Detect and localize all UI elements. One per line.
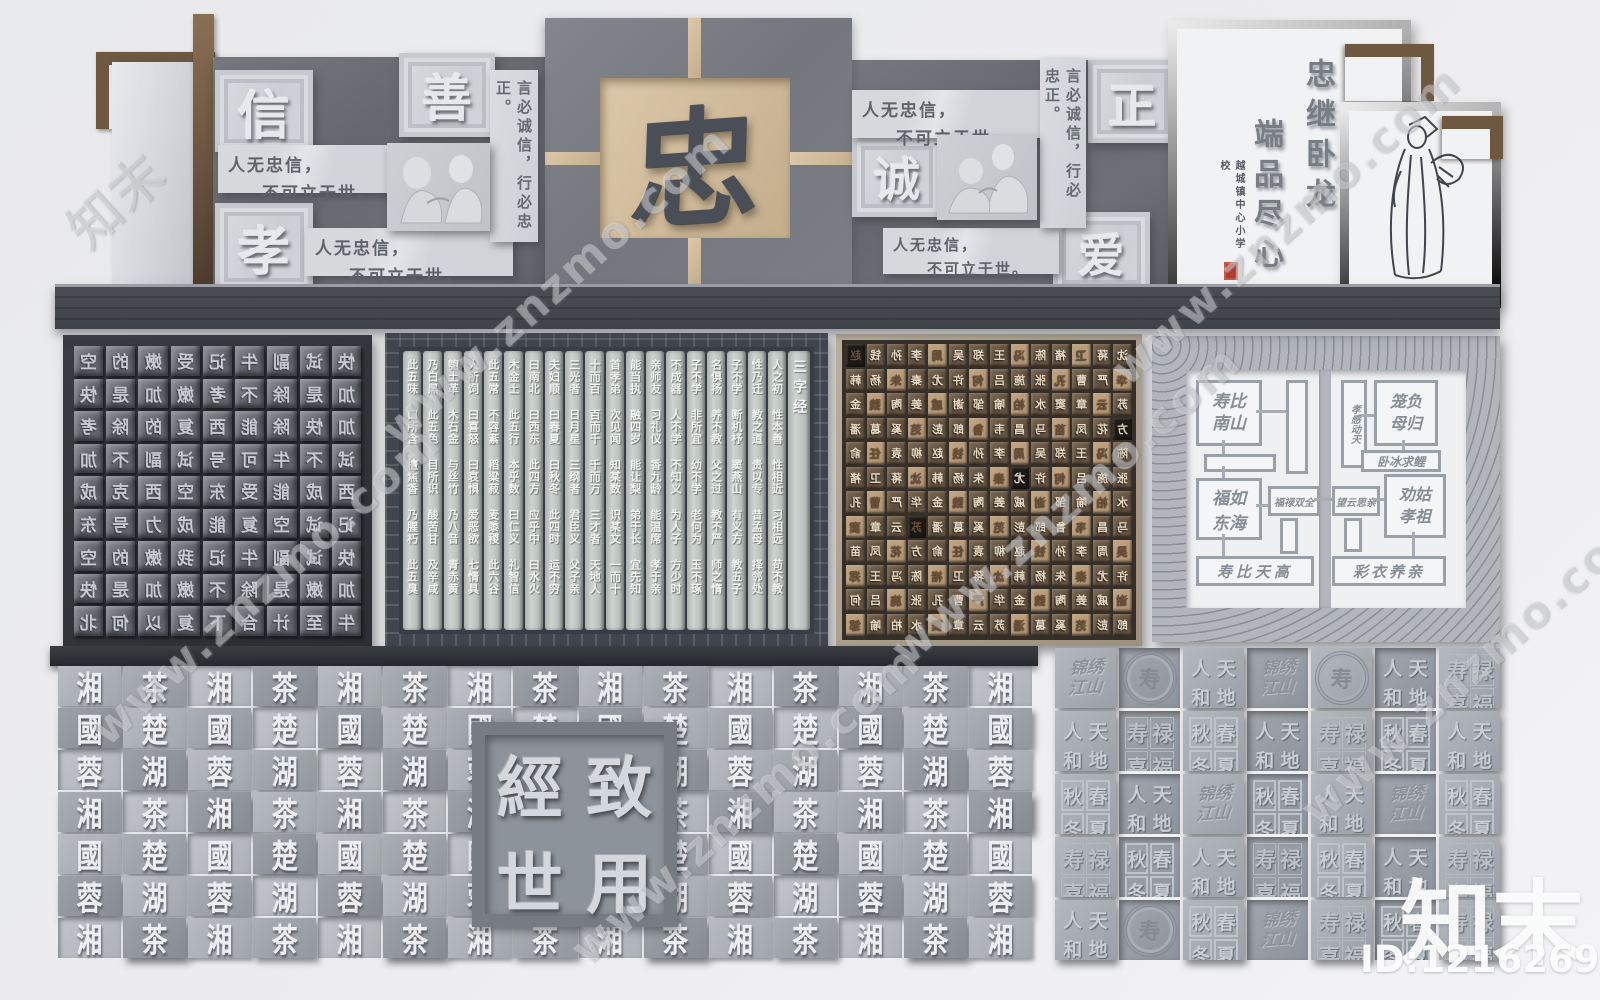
type-char-mirrored: 加	[338, 413, 355, 438]
type-char-mirrored: 空	[80, 544, 97, 569]
seal-block: 湘	[839, 666, 902, 706]
type-block: 能	[267, 476, 296, 506]
surname-block: 何	[969, 369, 988, 392]
surname-char-mirrored: 曹	[953, 592, 964, 608]
surname-char-mirrored: 孙	[973, 445, 984, 461]
surname-char-mirrored: 邹	[1055, 494, 1066, 510]
surname-char-mirrored: 潘	[932, 519, 943, 535]
type-char-mirrored: 考	[209, 381, 226, 406]
type-block: 空	[267, 509, 296, 539]
seal-char: 國	[207, 831, 233, 877]
surname-char-mirrored: 苗	[850, 543, 861, 559]
surname-block: 姜	[990, 491, 1009, 514]
surname-char-mirrored: 秦	[911, 372, 922, 388]
diagram-line	[1222, 534, 1225, 556]
surname-block: 苗	[1052, 418, 1071, 441]
blessing-box-wangyunsiqin: 望云思亲	[1332, 486, 1380, 516]
tile-tiandi: 人天和地	[1247, 711, 1308, 771]
surname-char-mirrored: 秦	[1076, 568, 1087, 584]
type-char-mirrored: 牛	[241, 544, 258, 569]
春夏秋冬-grid: 秋春冬夏	[1061, 780, 1110, 828]
blessing-box-shoubitiangao: 寿比天高	[1196, 556, 1314, 586]
type-block: 可	[235, 444, 264, 474]
tile-char: 天	[1086, 906, 1109, 933]
type-block: 嫩	[171, 379, 200, 409]
type-char-mirrored: 加	[145, 381, 162, 406]
surname-block: 韩	[1011, 565, 1030, 588]
surname-block: 马	[1113, 516, 1132, 539]
surname-block: 金	[1011, 589, 1030, 612]
sanzijing-slat: 子不学 非所宜 幼不学 老何为 玉不琢	[687, 351, 705, 630]
surname-block: 邹	[1052, 491, 1071, 514]
seal-char: 國	[987, 831, 1013, 877]
diagram-connector-box	[1344, 518, 1362, 552]
type-block: 克	[106, 476, 135, 506]
seal-char: 蓉	[337, 747, 363, 793]
quote-line2: 不可立于世。	[228, 179, 396, 204]
tile-char: 地	[1214, 683, 1237, 708]
seal-char: 茶	[272, 789, 298, 835]
type-block: 加	[332, 411, 361, 441]
春夏秋冬-grid: 秋春冬夏	[1445, 780, 1494, 828]
seal-block: 國	[709, 708, 772, 748]
type-char-mirrored: 记	[338, 511, 355, 536]
surname-char-mirrored: 郑	[973, 347, 984, 363]
seal-block: 湘	[969, 792, 1032, 832]
surname-block: 吕	[990, 369, 1009, 392]
surname-block: 朱	[887, 369, 906, 392]
surname-block: 水	[1031, 393, 1050, 416]
type-char-mirrored: 东	[80, 511, 97, 536]
surname-block: 尤	[1093, 565, 1112, 588]
surname-block: 彭	[928, 418, 947, 441]
type-char-mirrored: 除	[273, 413, 290, 438]
tile-char: 天	[1406, 654, 1429, 681]
type-block: 嫩	[138, 346, 167, 376]
sanzijing-title-slat: 三字经	[788, 351, 810, 630]
tile-char: 和	[1445, 746, 1468, 771]
seal-char: 茶	[272, 915, 298, 961]
sanzijing-slat: 能当执 融四岁 能让梨 弟于长 宜先知	[626, 351, 644, 630]
surname-char-mirrored: 任	[870, 445, 881, 461]
surname-block: 秦	[908, 369, 927, 392]
seal-char: 湘	[987, 663, 1013, 709]
surname-block: 云	[887, 516, 906, 539]
surname-char-mirrored: 赵	[932, 445, 943, 461]
school-name: 越城镇中心小学校	[1216, 160, 1246, 258]
jinxiu-line: 江山	[1259, 677, 1295, 700]
type-block: 以	[138, 606, 167, 636]
surname-block: 赵	[846, 344, 865, 367]
surname-char-mirrored: 潘	[850, 421, 861, 437]
type-block: 复	[171, 411, 200, 441]
type-char-mirrored: 的	[112, 348, 129, 373]
surname-char-mirrored: 曹	[870, 494, 881, 510]
stone-pillar	[112, 62, 196, 284]
tile-char: 寿	[1317, 717, 1340, 749]
jinxiu-line: 江山	[1387, 803, 1423, 826]
春夏秋冬-grid: 秋春冬夏	[1253, 780, 1302, 828]
surname-block: 苏	[1113, 393, 1132, 416]
seal-block: 湘	[969, 918, 1032, 958]
tile-fulu: 寿禄喜福	[1247, 837, 1308, 897]
blessing-box-quanguxiaozu: 劝姑孝祖	[1384, 474, 1446, 538]
seal-char: 湖	[272, 873, 298, 919]
surname-char-mirrored: 彭	[1014, 519, 1025, 535]
seal-char: 楚	[272, 705, 298, 751]
surname-block: 许	[1113, 565, 1132, 588]
tile-char: 禄	[1342, 717, 1365, 749]
天地人和-grid: 人天和地	[1061, 906, 1110, 954]
type-char-mirrored: 东	[209, 478, 226, 503]
blessing-diagram-panel: 寿比南山 福如东海 福禄双全 寿比天高 孝感动天 笼负母归 卧冰求鲤 望云思亲 …	[1152, 336, 1500, 642]
surname-char-mirrored: 葛	[1035, 617, 1046, 633]
seal-char: 茶	[402, 915, 428, 961]
type-char-mirrored: 嫩	[177, 381, 194, 406]
surname-block: 郎	[1113, 614, 1132, 637]
surname-block: 柏	[1011, 393, 1030, 416]
seal-char: 楚	[142, 705, 168, 751]
seal-char: 湘	[77, 663, 103, 709]
tile-char: 秋	[1061, 780, 1084, 811]
calligraphy-line-2: 端品尽心	[1243, 118, 1287, 288]
type-char-mirrored: 号	[209, 446, 226, 471]
sanzijing-slat: 曰南北 曰西东 此四方 应乎中 曰水火	[525, 351, 543, 630]
type-block: 不	[235, 379, 264, 409]
seal-block: 茶	[383, 666, 446, 706]
tile-tiandi: 人天和地	[1311, 774, 1372, 834]
tile-char: 寿	[1317, 906, 1340, 938]
surname-char-mirrored: 彭	[1097, 617, 1108, 633]
tile-medallion: 寿	[1119, 648, 1180, 708]
tile-jinxiu: 锦绣江山	[1055, 648, 1116, 708]
tile-fulu: 寿禄喜福	[1311, 711, 1372, 771]
surname-block: 钱	[949, 442, 968, 465]
surname-block: 范	[908, 418, 927, 441]
type-char-mirrored: 至	[306, 609, 323, 634]
type-char-mirrored: 的	[112, 544, 129, 569]
type-char-mirrored: 试	[306, 511, 323, 536]
tile-char: 地	[1150, 809, 1173, 834]
seal-block: 楚	[904, 708, 967, 748]
seal-char: 茶	[922, 789, 948, 835]
surname-char-mirrored: 魏	[870, 396, 881, 412]
tile-char: 春	[1150, 843, 1173, 874]
tile-char: 夏	[1278, 813, 1301, 834]
seal-block: 湘	[318, 792, 381, 832]
tile-char: 人	[1061, 717, 1084, 744]
tile-char: 秋	[1381, 717, 1404, 748]
longevity-medallion-icon: 寿	[1123, 903, 1177, 957]
diagram-line	[1314, 498, 1332, 501]
loyalty-char: 忠	[627, 61, 762, 254]
tile-char: 冬	[1381, 750, 1404, 771]
surname-block: 谢	[949, 393, 968, 416]
quote-plaque-1: 人无忠信， 不可立于世。	[218, 145, 406, 193]
type-block: 试	[171, 444, 200, 474]
slat-container: 三字经 人之初 性本善 性相近 习相远 苟不教性乃迁 教之道 贵以专 昔孟母 择…	[399, 347, 814, 634]
seal-char: 湘	[337, 789, 363, 835]
surname-char-mirrored: 马	[1117, 519, 1128, 535]
surname-block: 奚	[887, 418, 906, 441]
surname-block: 曹	[1072, 369, 1091, 392]
surname-char-mirrored: 方	[1117, 421, 1128, 437]
quote-line2: 不可立于世。	[893, 258, 1049, 279]
surname-block: 喻	[1072, 491, 1091, 514]
surname-block: 韦	[1072, 516, 1091, 539]
jinxiu-jiangshan-text: 锦绣江山	[1259, 656, 1296, 699]
jinxiu-line: 锦绣	[1068, 656, 1104, 679]
surname-block: 云	[1093, 393, 1112, 416]
tile-char: 福	[1278, 877, 1301, 897]
surname-char-mirrored: 施	[1097, 470, 1108, 486]
tile-char: 喜	[1317, 751, 1340, 771]
surname-block: 蒋	[1093, 344, 1112, 367]
surname-block: 孙	[1052, 540, 1071, 563]
surname-char-mirrored: 窦	[1055, 396, 1066, 412]
type-char-mirrored: 西	[338, 478, 355, 503]
diagram-line	[1402, 440, 1405, 450]
surname-char-mirrored: 云	[891, 519, 902, 535]
seal-block: 茶	[904, 666, 967, 706]
seal-char: 國	[207, 705, 233, 751]
virtue-char-shan: 善	[422, 59, 472, 131]
type-char-mirrored: 是	[273, 576, 290, 601]
surname-block: 马	[1031, 418, 1050, 441]
surname-block: 方	[1113, 418, 1132, 441]
seal-block: 湘	[188, 666, 251, 706]
surname-char-mirrored: 喻	[1076, 494, 1087, 510]
天地人和-grid: 人天和地	[1381, 654, 1430, 702]
tile-fulu: 寿禄喜福	[1119, 711, 1180, 771]
virtue-panel-cheng: 诚	[852, 137, 942, 217]
type-block: 考	[203, 379, 232, 409]
surname-char-mirrored: 戚	[932, 396, 943, 412]
type-char-mirrored: 受	[177, 348, 194, 373]
seal-char: 湖	[792, 873, 818, 919]
type-char-mirrored: 牛	[338, 609, 355, 634]
surname-char-mirrored: 曹	[1076, 372, 1087, 388]
tile-jinxiu: 锦绣江山	[1375, 774, 1436, 834]
tile-char: 夏	[1342, 876, 1365, 897]
surname-char-mirrored: 袁	[891, 445, 902, 461]
surname-block: 陶	[887, 393, 906, 416]
seal-block: 蓉	[969, 750, 1032, 790]
type-char-mirrored: 不	[209, 576, 226, 601]
surname-block: 戚	[928, 393, 947, 416]
jinxiu-line: 江山	[1067, 677, 1103, 700]
surname-char-mirrored: 王	[994, 347, 1005, 363]
tile-medallion: 寿	[1311, 648, 1372, 708]
surname-block: 钱	[1031, 540, 1050, 563]
type-block: 嫩	[171, 574, 200, 604]
surname-block: 张	[1113, 467, 1132, 490]
seal-block: 蓉	[188, 876, 251, 916]
surname-block: 尤	[1011, 467, 1030, 490]
seal-char: 國	[337, 705, 363, 751]
surname-char-mirrored: 韩	[1014, 568, 1025, 584]
tile-char: 福	[1470, 688, 1493, 708]
seal-block: 楚	[253, 834, 316, 874]
seal-block: 湖	[383, 876, 446, 916]
tile-char: 地	[1278, 746, 1301, 771]
jinxiu-line: 锦绣	[1260, 656, 1296, 679]
seal-block: 湖	[123, 750, 186, 790]
seal-block: 楚	[774, 834, 837, 874]
seal-block: 國	[58, 834, 121, 874]
surname-block: 周	[1011, 442, 1030, 465]
surname-char-mirrored: 谢	[1035, 494, 1046, 510]
type-char-mirrored: 西	[209, 413, 226, 438]
surname-char-mirrored: 云	[1097, 396, 1108, 412]
tile-chunxia: 秋春冬夏	[1183, 711, 1244, 771]
surname-char-mirrored: 沈	[1117, 347, 1128, 363]
tile-char: 和	[1061, 935, 1084, 960]
seal-block: 茶	[123, 918, 186, 958]
red-seal-stamp	[1224, 262, 1238, 280]
surname-char-mirrored: 冯	[1097, 445, 1108, 461]
seal-char: 蓉	[857, 873, 883, 919]
春夏秋冬-grid: 秋春冬夏	[1317, 843, 1366, 891]
seal-char: 蓉	[727, 873, 753, 919]
福禄寿喜-grid: 寿禄喜福	[1253, 843, 1302, 891]
tile-jinxiu: 锦绣江山	[1247, 648, 1308, 708]
surname-char-mirrored: 吕	[1076, 470, 1087, 486]
seal-block: 湖	[123, 876, 186, 916]
type-block: 计	[267, 606, 296, 636]
sanzijing-slat: 子不学 断机杼 窦燕山 有义方 教五子	[727, 351, 745, 630]
tile-char: 夏	[1214, 750, 1237, 771]
seal-char: 茶	[142, 915, 168, 961]
surname-char-mirrored: 李	[911, 347, 922, 363]
surname-block: 柳	[990, 540, 1009, 563]
type-char-mirrored: 空	[273, 511, 290, 536]
tile-char: 福	[1086, 877, 1109, 897]
diagram-line	[1222, 466, 1225, 478]
seal-char: 茶	[402, 663, 428, 709]
type-char-mirrored: 嫩	[145, 544, 162, 569]
type-block: 我	[171, 541, 200, 571]
surname-char-mirrored: 华	[994, 592, 1005, 608]
jingshizhiyong-panel: 經 致 世 用	[472, 722, 677, 927]
type-block: 副	[267, 346, 296, 376]
tile-char: 地	[1086, 746, 1109, 771]
type-block: 合	[235, 606, 264, 636]
surname-char-mirrored: 陈	[1035, 347, 1046, 363]
surname-char-mirrored: 谢	[953, 396, 964, 412]
surname-block: 鲁	[969, 418, 988, 441]
tile-chunxia: 秋春冬夏	[1375, 711, 1436, 771]
seal-char: 湘	[857, 789, 883, 835]
jinxiu-line: 锦绣	[1388, 782, 1424, 805]
tile-char: 喜	[1125, 751, 1148, 771]
wood-type-panel: 赵钱孙李周吴郑王冯陈褚卫蒋沈韩杨朱秦尤许何吕施张孔曹严华金魏陶姜戚谢邹喻柏水窦章…	[836, 334, 1142, 646]
sanzijing-slat: 不成器 人不学 不知义 为人子 方少时	[666, 351, 684, 630]
seal-block: 國	[188, 834, 251, 874]
surname-block: 秦	[990, 467, 1009, 490]
jinxiu-line: 江山	[1195, 803, 1231, 826]
sanzijing-slat: 三光者 日月星 三纲者 君臣义 父子亲	[565, 351, 583, 630]
type-block: 加	[332, 379, 361, 409]
type-char-mirrored: 快	[80, 576, 97, 601]
seal-block: 國	[969, 708, 1032, 748]
surname-block: 王	[990, 344, 1009, 367]
seal-char: 國	[337, 831, 363, 877]
surname-block: 曹	[949, 589, 968, 612]
tile-char: 寿	[1061, 843, 1084, 875]
sanzijing-slat: 乃白黑 此五色 目所识 酸苦甘 及辛咸	[423, 351, 441, 630]
tile-char: 福	[1150, 751, 1173, 771]
surname-block: 尤	[928, 369, 947, 392]
天地人和-grid: 人天和地	[1445, 717, 1494, 765]
tile-char: 秋	[1125, 843, 1148, 874]
type-block: 嫩	[138, 541, 167, 571]
surname-char-mirrored: 卫	[953, 568, 964, 584]
virtue-char-xin: 信	[238, 74, 290, 149]
surname-block: 金	[846, 393, 865, 416]
tile-char: 冬	[1189, 939, 1212, 960]
surname-char-mirrored: 杨	[953, 470, 964, 486]
school-signature-group: 越城镇中心小学校	[1216, 160, 1246, 280]
surname-block: 许	[1031, 467, 1050, 490]
type-block: 复	[235, 509, 264, 539]
surname-char-mirrored: 王	[1076, 445, 1087, 461]
tile-char: 春	[1086, 780, 1109, 811]
surname-char-mirrored: 苏	[994, 617, 1005, 633]
seal-char: 湘	[77, 915, 103, 961]
sanzijing-slat: 名俱扬 养不教 父之过 教不严 师之惰	[707, 351, 725, 630]
surname-char-mirrored: 柏	[1014, 396, 1025, 412]
blessing-box-shoubinanshan: 寿比南山	[1196, 380, 1262, 446]
tile-char: 春	[1406, 717, 1429, 748]
surname-block: 孙	[887, 344, 906, 367]
center-char-yong: 用	[575, 831, 665, 927]
tile-char: 禄	[1086, 843, 1109, 875]
tile-tiandi: 人天和地	[1119, 774, 1180, 834]
tile-char: 喜	[1061, 877, 1084, 897]
blessing-text: 笼负母归	[1387, 391, 1425, 434]
tile-char: 喜	[1253, 877, 1276, 897]
surname-block: 施	[1011, 369, 1030, 392]
tile-char: 冬	[1445, 813, 1468, 834]
surname-block: 彭	[1011, 516, 1030, 539]
surname-char-mirrored: 葛	[870, 421, 881, 437]
surname-char-mirrored: 俞	[850, 445, 861, 461]
surname-block: 陈	[908, 565, 927, 588]
tile-char: 和	[1381, 683, 1404, 708]
surname-char-mirrored: 褚	[850, 470, 861, 486]
tile-char: 禄	[1278, 843, 1301, 875]
surname-block: 华	[1113, 369, 1132, 392]
seal-char: 湘	[597, 663, 623, 709]
seal-block: 茶	[644, 666, 707, 706]
type-char-mirrored: 牛	[241, 348, 258, 373]
surname-char-mirrored: 朱	[1055, 568, 1066, 584]
tile-fulu: 寿禄喜福	[1439, 648, 1500, 708]
tile-char: 冬	[1189, 750, 1212, 771]
seal-char: 蓉	[77, 747, 103, 793]
seal-char: 湘	[337, 663, 363, 709]
tile-char: 福	[1342, 751, 1365, 771]
type-block: 除	[106, 411, 135, 441]
type-char-mirrored: 以	[145, 609, 162, 634]
surname-char-mirrored: 郎	[1035, 519, 1046, 535]
seal-char: 湘	[207, 789, 233, 835]
surname-char-mirrored: 金	[850, 396, 861, 412]
type-block: 牛	[235, 541, 264, 571]
blessing-text: 望云思亲	[1336, 494, 1376, 509]
tile-char: 天	[1214, 843, 1237, 870]
